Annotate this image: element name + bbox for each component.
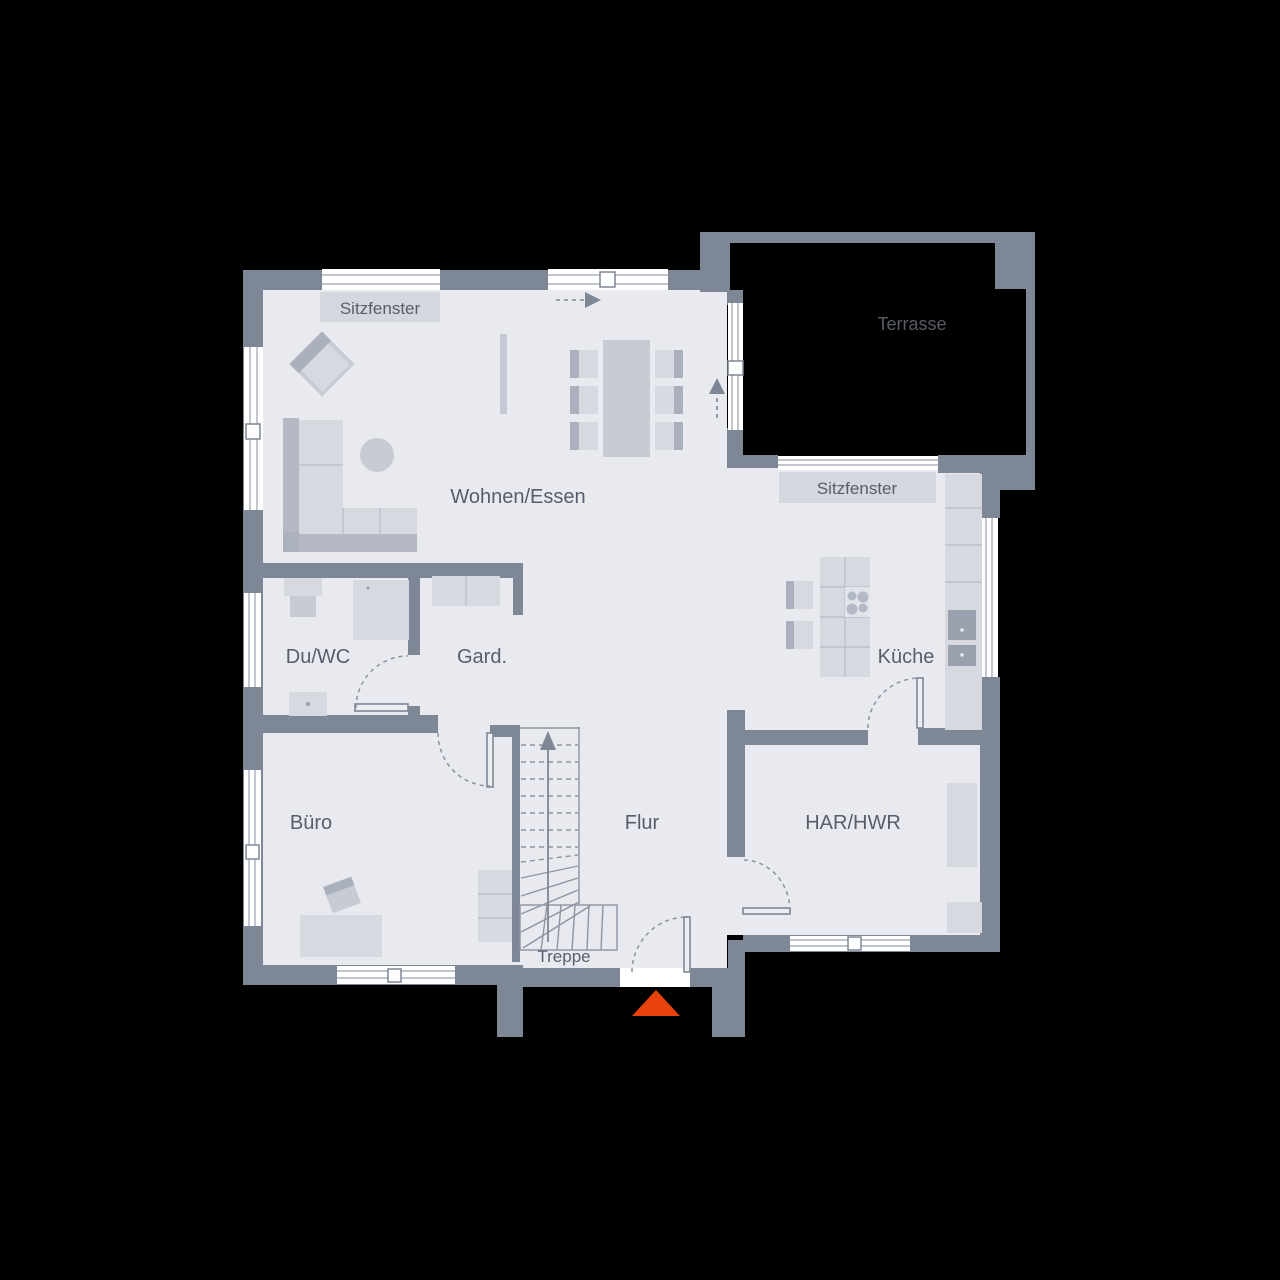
window-handle-icon <box>848 937 861 950</box>
toilet <box>290 596 316 617</box>
bookshelf <box>478 870 512 942</box>
window-left-buero <box>244 770 261 926</box>
label-terrasse: Terrasse <box>877 314 946 334</box>
label-buero: Büro <box>290 812 332 834</box>
wall-buero-top <box>263 715 438 733</box>
window-top-dining <box>548 269 668 290</box>
dining-table <box>603 340 650 457</box>
label-har-hwr: HAR/HWR <box>805 812 901 834</box>
wall-right-upper <box>980 490 1000 518</box>
floor-plan-canvas: Sitzfenster Sitzfenster Terrasse Wohnen/… <box>0 0 1280 1280</box>
window-handle-icon <box>246 845 259 859</box>
oven <box>948 610 976 640</box>
wall-terrace-bottom-left <box>727 455 778 468</box>
label-kueche: Küche <box>878 646 935 668</box>
wall-terrace-right <box>1026 240 1035 465</box>
wall-house-ne-corner <box>980 455 1035 490</box>
window-handle-icon <box>246 424 260 439</box>
terrace-glass-door <box>728 303 743 430</box>
window-handle-icon <box>600 272 615 287</box>
label-wohnen-essen: Wohnen/Essen <box>450 486 585 508</box>
kitchen-island <box>820 557 870 677</box>
dining-chairs-right <box>655 350 683 450</box>
wall-porch-right <box>712 968 745 1037</box>
wall-porch-left <box>497 985 523 1037</box>
wall-below-terrace-door <box>727 428 743 455</box>
furniture-dining <box>570 340 683 457</box>
floor-right-wing <box>727 468 980 935</box>
wall-duwc-gard <box>408 563 420 655</box>
furniture-gard <box>432 576 500 606</box>
wall-right-lower <box>980 677 1000 952</box>
wall-bottom-mid <box>523 968 620 987</box>
wall-treppe-left <box>512 725 520 962</box>
desk <box>300 915 382 957</box>
furniture-har <box>947 783 982 933</box>
window-right-kueche <box>981 518 998 677</box>
wall-kueche-har-right <box>918 728 980 745</box>
window-left-wohnen <box>244 347 263 510</box>
door-handle-icon <box>728 361 743 375</box>
kitchen-counter <box>945 474 982 730</box>
window-sitzfenster-terrace <box>778 456 938 470</box>
label-flur: Flur <box>625 812 660 834</box>
shower <box>353 580 409 640</box>
label-treppe: Treppe <box>537 947 590 966</box>
label-du-wc: Du/WC <box>286 646 350 668</box>
entrance-door-opening <box>620 968 690 987</box>
window-bottom-buero <box>337 966 455 984</box>
toilet-tank <box>284 578 322 596</box>
label-gard: Gard. <box>457 646 507 668</box>
entrance-marker-icon <box>632 990 680 1016</box>
wall-flur-har-lower <box>728 940 745 970</box>
dining-chairs-left <box>570 350 598 450</box>
wall-kueche-har-left <box>745 730 868 745</box>
wall-terrace-top <box>700 232 1035 243</box>
window-handle-icon <box>388 969 401 982</box>
floor-plan: Sitzfenster Sitzfenster Terrasse Wohnen/… <box>0 0 1280 1280</box>
wall-bottom-entry-right <box>690 968 712 987</box>
window-left-duwc <box>244 593 261 687</box>
utility-cabinet <box>947 783 977 867</box>
side-table <box>360 438 394 472</box>
wall-gard-stub <box>513 563 523 615</box>
wall-above-terrace-door <box>727 290 743 305</box>
sliding-door-panel <box>500 334 507 414</box>
wall-wohnen-duwc <box>263 563 523 578</box>
utility-box <box>947 902 982 933</box>
label-sitzfenster-top: Sitzfenster <box>340 299 421 318</box>
window-sitzfenster-top <box>322 269 440 290</box>
wall-flur-har <box>727 710 745 857</box>
window-bottom-har <box>790 936 910 951</box>
label-sitzfenster-terrace: Sitzfenster <box>817 479 898 498</box>
